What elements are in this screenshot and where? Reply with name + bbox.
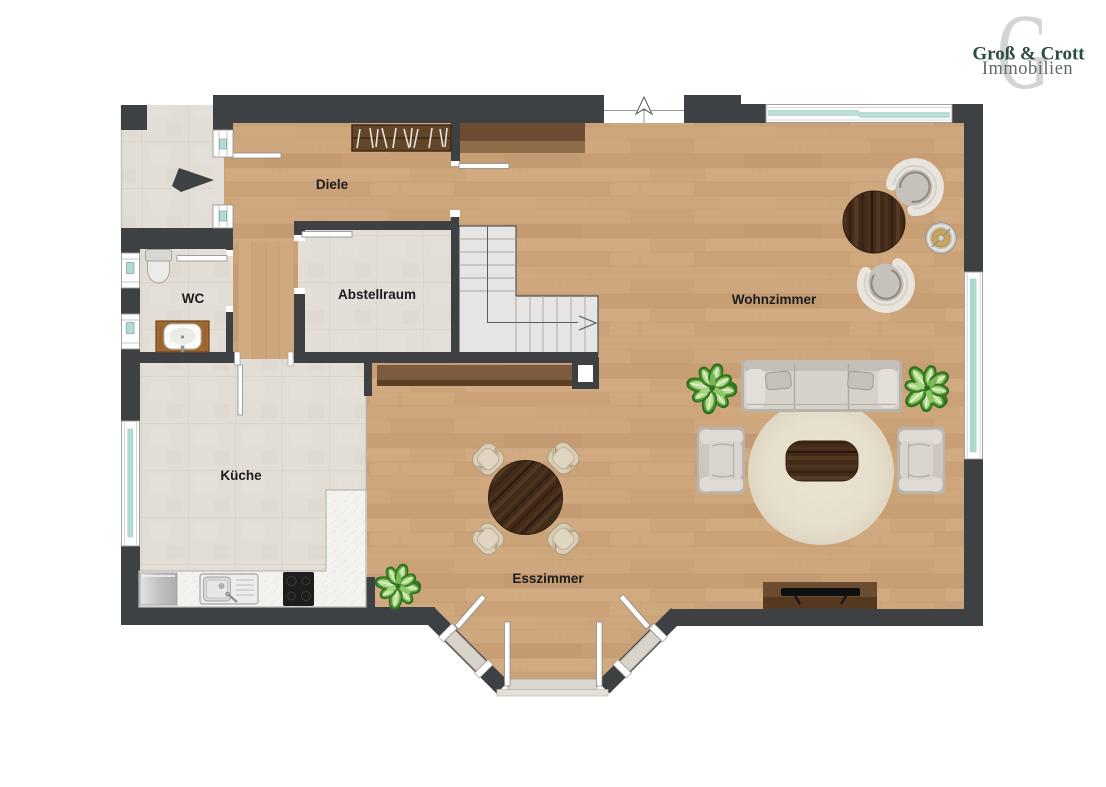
svg-text:Küche: Küche xyxy=(220,468,262,483)
svg-text:Wohnzimmer: Wohnzimmer xyxy=(732,292,817,307)
svg-text:Esszimmer: Esszimmer xyxy=(512,571,584,586)
svg-text:Immobilien: Immobilien xyxy=(982,59,1073,79)
svg-text:WC: WC xyxy=(182,291,205,306)
svg-text:Abstellraum: Abstellraum xyxy=(338,287,416,302)
svg-text:Diele: Diele xyxy=(316,177,349,192)
